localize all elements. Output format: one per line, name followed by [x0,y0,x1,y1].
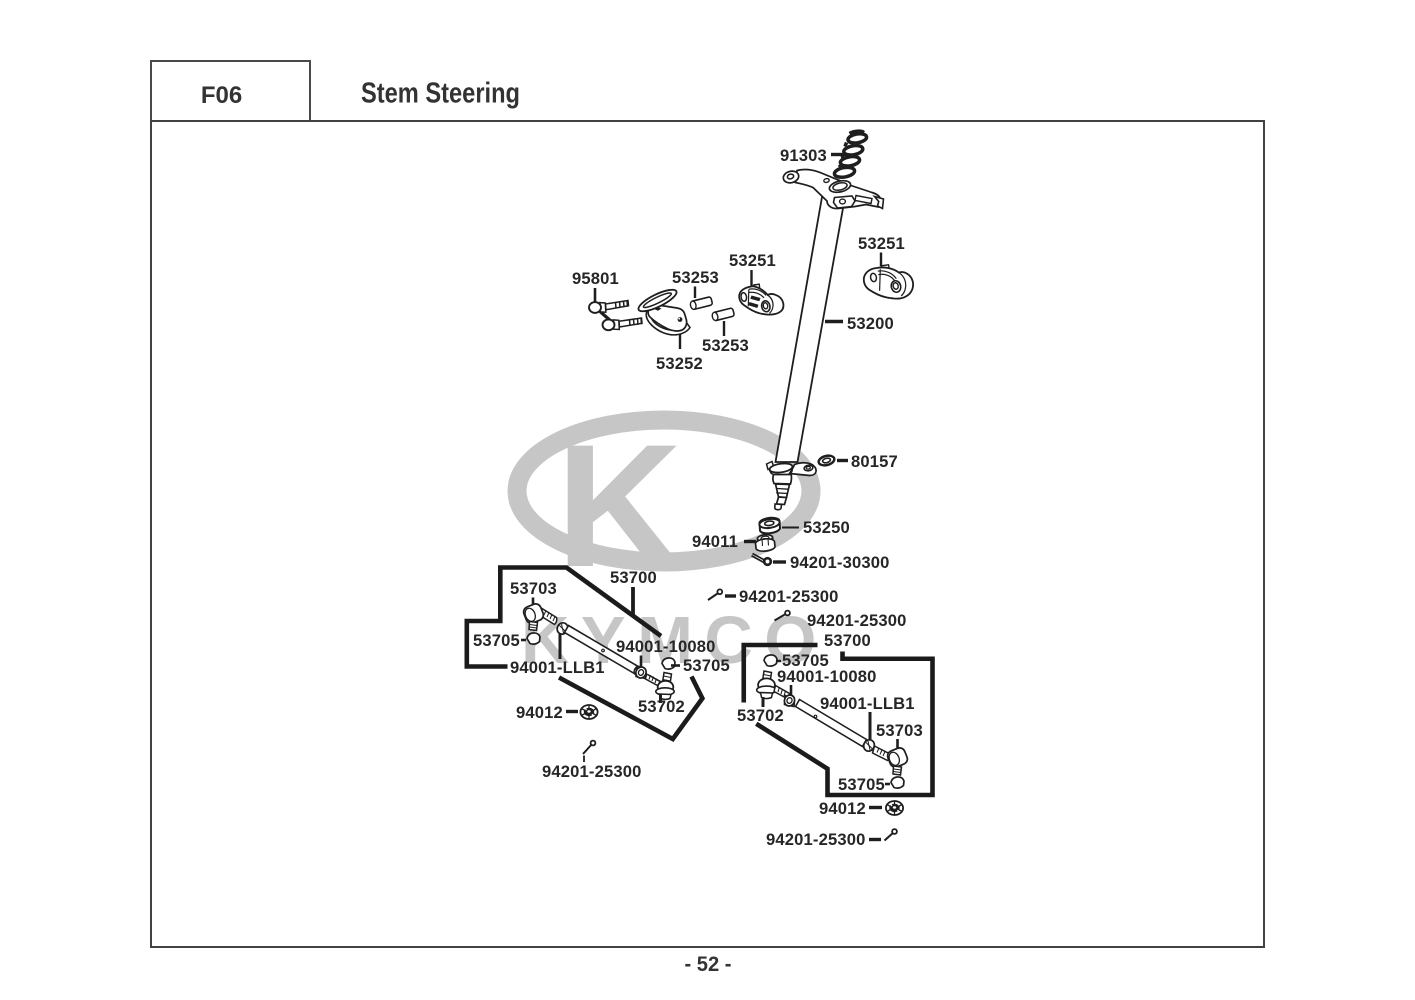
svg-text:Stem Steering: Stem Steering [361,78,520,110]
svg-text:53253: 53253 [672,268,719,287]
svg-text:53705: 53705 [473,631,520,650]
svg-text:53200: 53200 [847,314,894,333]
svg-text:53250: 53250 [803,518,850,537]
svg-text:- 52 -: - 52 - [685,952,732,976]
svg-text:80157: 80157 [851,452,898,471]
svg-text:94001-10080: 94001-10080 [616,637,715,656]
svg-text:94201-25300: 94201-25300 [807,611,906,630]
svg-text:53700: 53700 [824,631,871,650]
svg-text:94011: 94011 [692,532,738,551]
svg-text:53700: 53700 [610,568,657,587]
svg-text:94012: 94012 [516,703,563,722]
svg-text:94201-25300: 94201-25300 [766,830,865,849]
svg-text:53251: 53251 [858,234,905,253]
svg-text:95801: 95801 [572,269,619,288]
svg-text:53253: 53253 [702,336,749,355]
svg-text:91303: 91303 [780,146,827,165]
svg-text:94001-LLB1: 94001-LLB1 [510,658,605,677]
svg-text:94001-10080: 94001-10080 [777,667,876,686]
svg-text:F06: F06 [201,82,242,109]
svg-text:53703: 53703 [510,579,557,598]
svg-text:94201-25300: 94201-25300 [739,587,838,606]
svg-text:94201-25300: 94201-25300 [542,762,641,781]
svg-text:53702: 53702 [638,697,685,716]
svg-text:94201-30300: 94201-30300 [790,553,889,572]
svg-text:53252: 53252 [656,354,703,373]
svg-text:94001-LLB1: 94001-LLB1 [820,694,915,713]
svg-text:53703: 53703 [876,721,923,740]
svg-text:53251: 53251 [729,251,776,270]
svg-text:94012: 94012 [819,799,866,818]
svg-text:53705: 53705 [838,775,885,794]
svg-text:53702: 53702 [737,706,784,725]
svg-text:53705: 53705 [683,656,730,675]
